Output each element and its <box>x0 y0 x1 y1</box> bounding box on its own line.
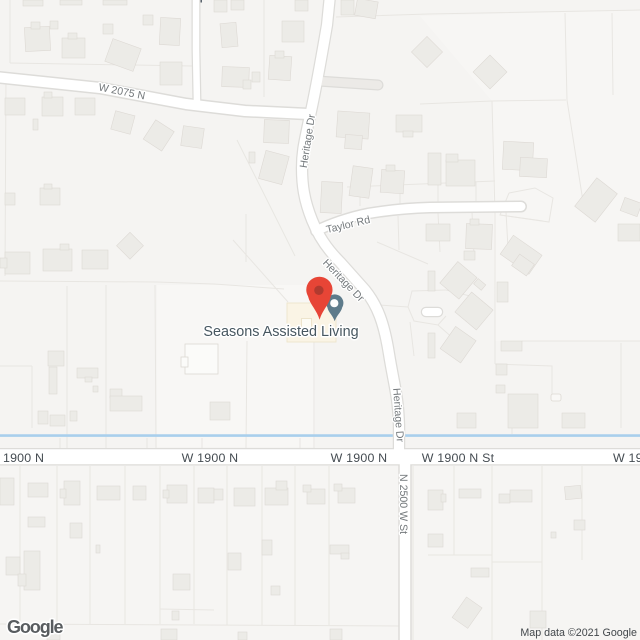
svg-text:W 1900 N: W 1900 N <box>182 451 239 465</box>
svg-text:Seasons Assisted Living: Seasons Assisted Living <box>203 324 358 340</box>
svg-text:W 19: W 19 <box>613 451 640 465</box>
svg-text:Map data ©2021 Google: Map data ©2021 Google <box>520 627 637 639</box>
svg-text:Google: Google <box>7 617 63 637</box>
svg-text:W 1900 N: W 1900 N <box>331 451 388 465</box>
svg-text:1900 N: 1900 N <box>3 451 44 465</box>
svg-text:W 1900 N St: W 1900 N St <box>422 451 495 465</box>
svg-text:N 2500 W St: N 2500 W St <box>397 474 409 534</box>
